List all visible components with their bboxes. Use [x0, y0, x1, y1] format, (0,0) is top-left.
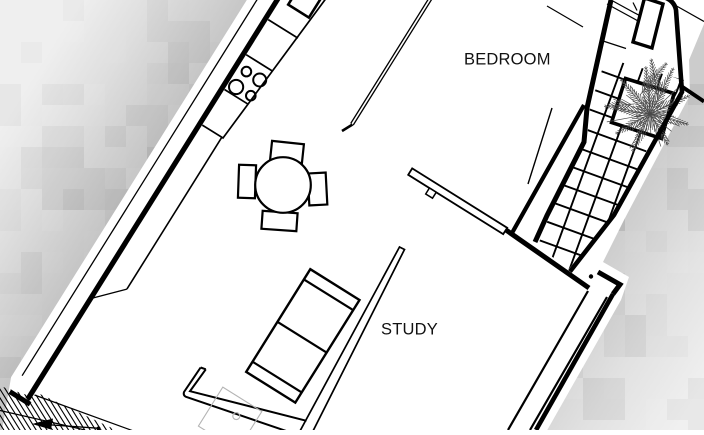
svg-text:STUDY: STUDY — [381, 321, 438, 339]
svg-text:BEDROOM: BEDROOM — [464, 51, 551, 69]
